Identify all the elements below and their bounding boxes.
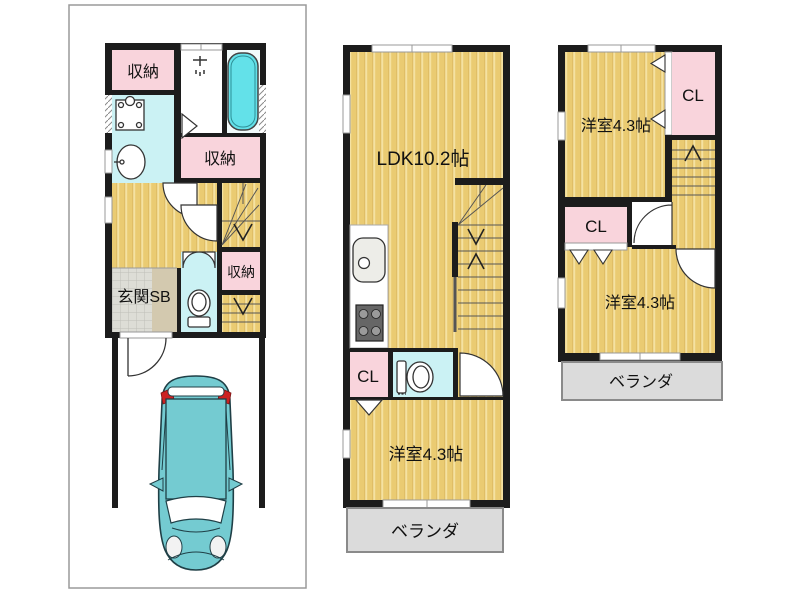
wall-cl-mid-right-3f: [627, 202, 632, 245]
label-ldk: LDK10.2帖: [377, 148, 470, 170]
stairs-side-wall-3f: [665, 140, 672, 202]
label-entrance: 玄関SB: [117, 288, 170, 306]
label-closet-2f: CL: [357, 367, 379, 386]
corridor-3f: [632, 202, 672, 247]
label-bedroom-top-3f: 洋室4.3帖: [581, 117, 651, 135]
floor3-plan: 洋室4.3帖 CL CL 洋室4.3帖 ベランダ: [558, 45, 722, 400]
label-closet-mid-3f: CL: [585, 217, 607, 236]
toilet-icon-1f: [188, 290, 210, 327]
wall-corridor-room-3f: [632, 245, 676, 249]
rear-window: [168, 387, 224, 396]
stairs-side-wall-2f: [452, 222, 458, 277]
wall-cl-bottom-3f: [665, 135, 715, 140]
car-roof: [166, 399, 226, 499]
label-storage-mid: 収納: [204, 150, 236, 168]
label-closet-top-3f: CL: [682, 86, 704, 105]
kitchen-sink-icon: [353, 238, 385, 282]
hatch-wall-right: [259, 85, 266, 133]
bathtub-icon: [228, 53, 258, 130]
stairs-landing-3f: [672, 202, 715, 247]
label-bedroom-bottom-3f: 洋室4.3帖: [605, 294, 675, 312]
floorplan-page: 収納 収納 収納 玄関SB: [0, 0, 800, 600]
stairs-top-wall-2f: [455, 178, 503, 185]
wall-cl-row-top: [350, 348, 458, 352]
stairs-rail-2f: [454, 277, 457, 332]
wall-room-top-bottom-3f: [565, 197, 672, 202]
wall-cl-mid-top-3f: [565, 202, 627, 207]
closet-door-track-mid-3f: [565, 243, 627, 250]
label-veranda-3f: ベランダ: [609, 373, 673, 391]
floorplan-canvas: 収納 収納 収納 玄関SB: [0, 0, 800, 600]
windshield: [166, 497, 226, 524]
label-bedroom-2f: 洋室4.3帖: [389, 445, 464, 464]
garage-wall-right: [259, 338, 265, 508]
wall-cl-toilet: [388, 352, 393, 397]
hatch-wall-left: [105, 95, 112, 133]
stairs-3f: [672, 140, 715, 202]
floor1-plan: 収納 収納 収納 玄関SB: [69, 5, 306, 588]
label-veranda-2f: ベランダ: [391, 522, 459, 541]
wall-toilet-door: [453, 348, 458, 397]
toilet-icon-2f: [397, 361, 433, 394]
floor2-plan: LDK10.2帖 CL 洋室4.3帖 ベランダ: [343, 45, 510, 552]
car-top-view: [150, 376, 242, 570]
stove-icon: [356, 305, 383, 341]
washing-machine-icon: [116, 97, 144, 131]
label-storage-top: 収納: [127, 63, 159, 81]
closet-door-track-3f: [665, 52, 672, 135]
garage-wall-left: [112, 338, 118, 508]
label-storage-small: 収納: [227, 264, 255, 280]
